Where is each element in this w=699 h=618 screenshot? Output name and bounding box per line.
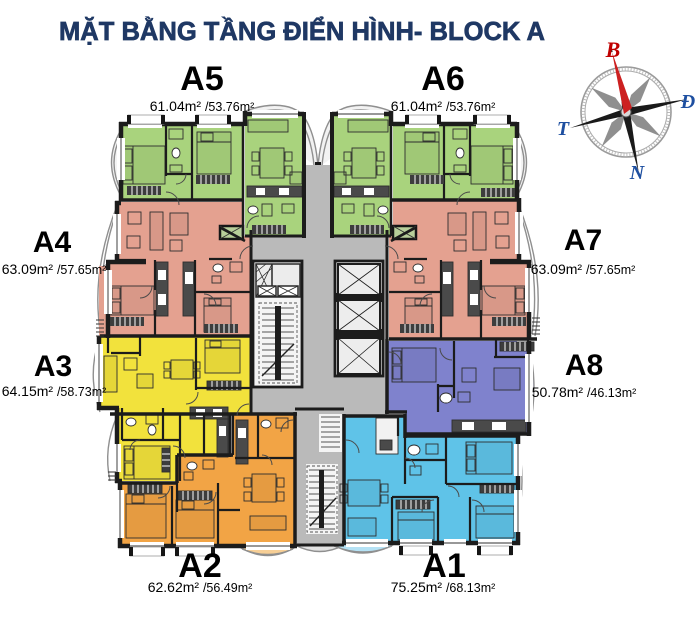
- svg-text:B: B: [605, 37, 621, 62]
- svg-text:A3: A3: [34, 350, 72, 383]
- svg-text:63.09m² /57.65m²: 63.09m² /57.65m²: [2, 261, 107, 277]
- svg-text:50.78m² /46.13m²: 50.78m² /46.13m²: [532, 384, 637, 400]
- svg-text:A7: A7: [564, 224, 602, 257]
- svg-text:A8: A8: [565, 349, 603, 382]
- svg-text:61.04m² /53.76m²: 61.04m² /53.76m²: [150, 98, 255, 114]
- svg-text:A6: A6: [421, 60, 464, 98]
- svg-text:61.04m² /53.76m²: 61.04m² /53.76m²: [391, 98, 496, 114]
- svg-text:T: T: [557, 118, 570, 140]
- svg-text:A4: A4: [33, 226, 72, 259]
- svg-text:63.09m² /57.65m²: 63.09m² /57.65m²: [531, 261, 636, 277]
- svg-text:N: N: [629, 162, 646, 184]
- svg-text:62.62m² /56.49m²: 62.62m² /56.49m²: [148, 579, 253, 595]
- svg-text:75.25m² /68.13m²: 75.25m² /68.13m²: [391, 579, 496, 595]
- svg-text:Đ: Đ: [680, 91, 695, 113]
- svg-text:MẶT BẰNG TẦNG ĐIỂN HÌNH- BLOCK: MẶT BẰNG TẦNG ĐIỂN HÌNH- BLOCK A: [59, 16, 545, 46]
- svg-text:A5: A5: [180, 60, 223, 98]
- svg-text:64.15m² /58.73m²: 64.15m² /58.73m²: [2, 383, 107, 399]
